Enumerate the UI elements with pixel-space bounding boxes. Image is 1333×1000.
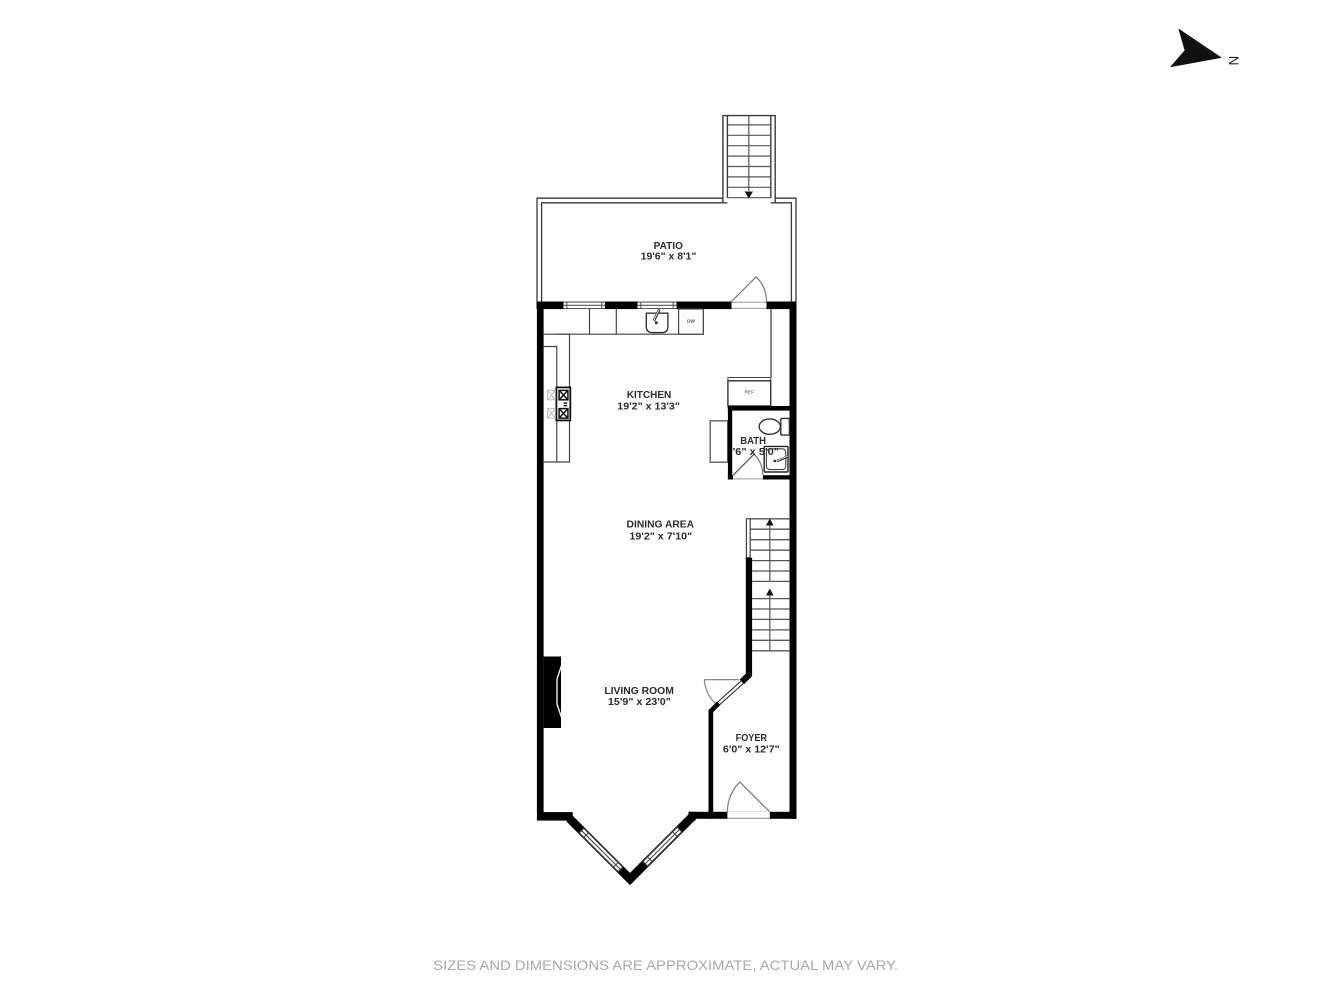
svg-text:N: N (1226, 56, 1241, 66)
svg-text:KITCHEN: KITCHEN (627, 390, 672, 401)
svg-text:15'9" x 23'0": 15'9" x 23'0" (608, 696, 671, 708)
svg-text:DINING AREA: DINING AREA (627, 520, 695, 531)
svg-text:19'2" x 13'3": 19'2" x 13'3" (617, 400, 680, 412)
svg-text:19'2" x 7'10": 19'2" x 7'10" (629, 530, 692, 542)
svg-text:SIZES AND DIMENSIONS ARE APPRO: SIZES AND DIMENSIONS ARE APPROXIMATE, AC… (433, 957, 898, 973)
svg-text:6'0" x 12'7": 6'0" x 12'7" (723, 743, 780, 755)
svg-text:'6" x 5'0": '6" x 5'0" (733, 446, 779, 458)
svg-text:19'6" x 8'1": 19'6" x 8'1" (641, 251, 697, 263)
svg-text:DW: DW (687, 319, 695, 325)
svg-text:REF: REF (744, 389, 754, 395)
svg-text:FOYER: FOYER (736, 733, 768, 744)
